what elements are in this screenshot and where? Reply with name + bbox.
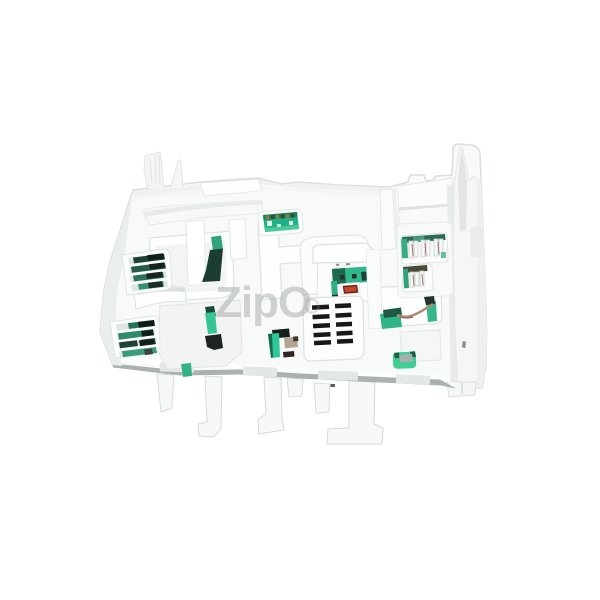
svg-text:ZipO: ZipO [215,278,311,327]
